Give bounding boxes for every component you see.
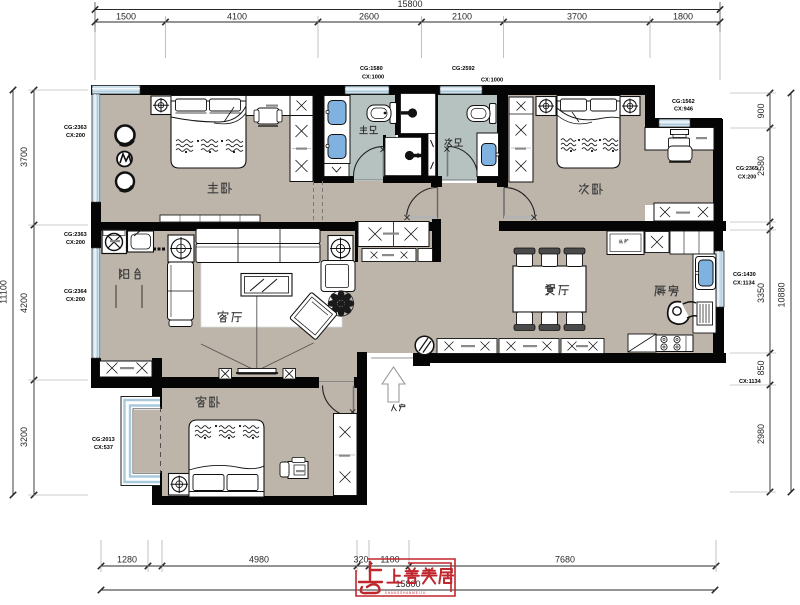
svg-text:7680: 7680 (555, 555, 575, 565)
svg-text:3700: 3700 (19, 147, 29, 167)
svg-text:4980: 4980 (249, 555, 269, 565)
svg-text:4200: 4200 (19, 293, 29, 313)
svg-text:CX:200: CX:200 (66, 133, 85, 139)
svg-text:CG:2013: CG:2013 (92, 437, 115, 443)
svg-text:3700: 3700 (567, 12, 587, 22)
svg-text:2980: 2980 (756, 424, 766, 444)
svg-text:CG:2363: CG:2363 (64, 125, 87, 131)
svg-text:2100: 2100 (452, 12, 472, 22)
svg-text:CX:200: CX:200 (66, 240, 85, 246)
svg-text:CX:200: CX:200 (738, 175, 756, 181)
svg-text:CX:537: CX:537 (94, 445, 113, 451)
svg-text:CG:1580: CG:1580 (360, 66, 383, 72)
svg-text:1800: 1800 (673, 12, 693, 22)
svg-text:3350: 3350 (756, 283, 766, 303)
svg-text:CG:2592: CG:2592 (452, 66, 475, 72)
svg-text:CX:1000: CX:1000 (362, 75, 384, 81)
svg-text:320: 320 (353, 555, 368, 565)
svg-text:CX:1000: CX:1000 (481, 78, 503, 84)
svg-text:S H A N G S H A N M E I J U: S H A N G S H A N M E I J U (385, 591, 426, 595)
svg-text:CX:946: CX:946 (674, 107, 693, 113)
svg-text:4100: 4100 (227, 12, 247, 22)
svg-text:CX:200: CX:200 (66, 297, 85, 303)
svg-text:900: 900 (756, 103, 766, 118)
svg-text:CX:1134: CX:1134 (739, 379, 762, 385)
svg-text:1280: 1280 (117, 555, 137, 565)
svg-text:CG:2364: CG:2364 (64, 289, 88, 295)
svg-text:CG:1562: CG:1562 (672, 99, 695, 105)
svg-text:CG:1430: CG:1430 (733, 272, 756, 278)
svg-text:CG:2365: CG:2365 (736, 166, 758, 172)
svg-text:3200: 3200 (19, 427, 29, 447)
svg-text:11100: 11100 (0, 280, 9, 304)
svg-text:CX:1134: CX:1134 (733, 281, 756, 287)
svg-text:1500: 1500 (116, 12, 136, 22)
svg-text:CG:2363: CG:2363 (64, 232, 87, 238)
svg-text:850: 850 (756, 360, 766, 375)
svg-text:2600: 2600 (359, 12, 379, 22)
svg-text:15800: 15800 (397, 0, 422, 9)
svg-text:10880: 10880 (777, 282, 787, 307)
